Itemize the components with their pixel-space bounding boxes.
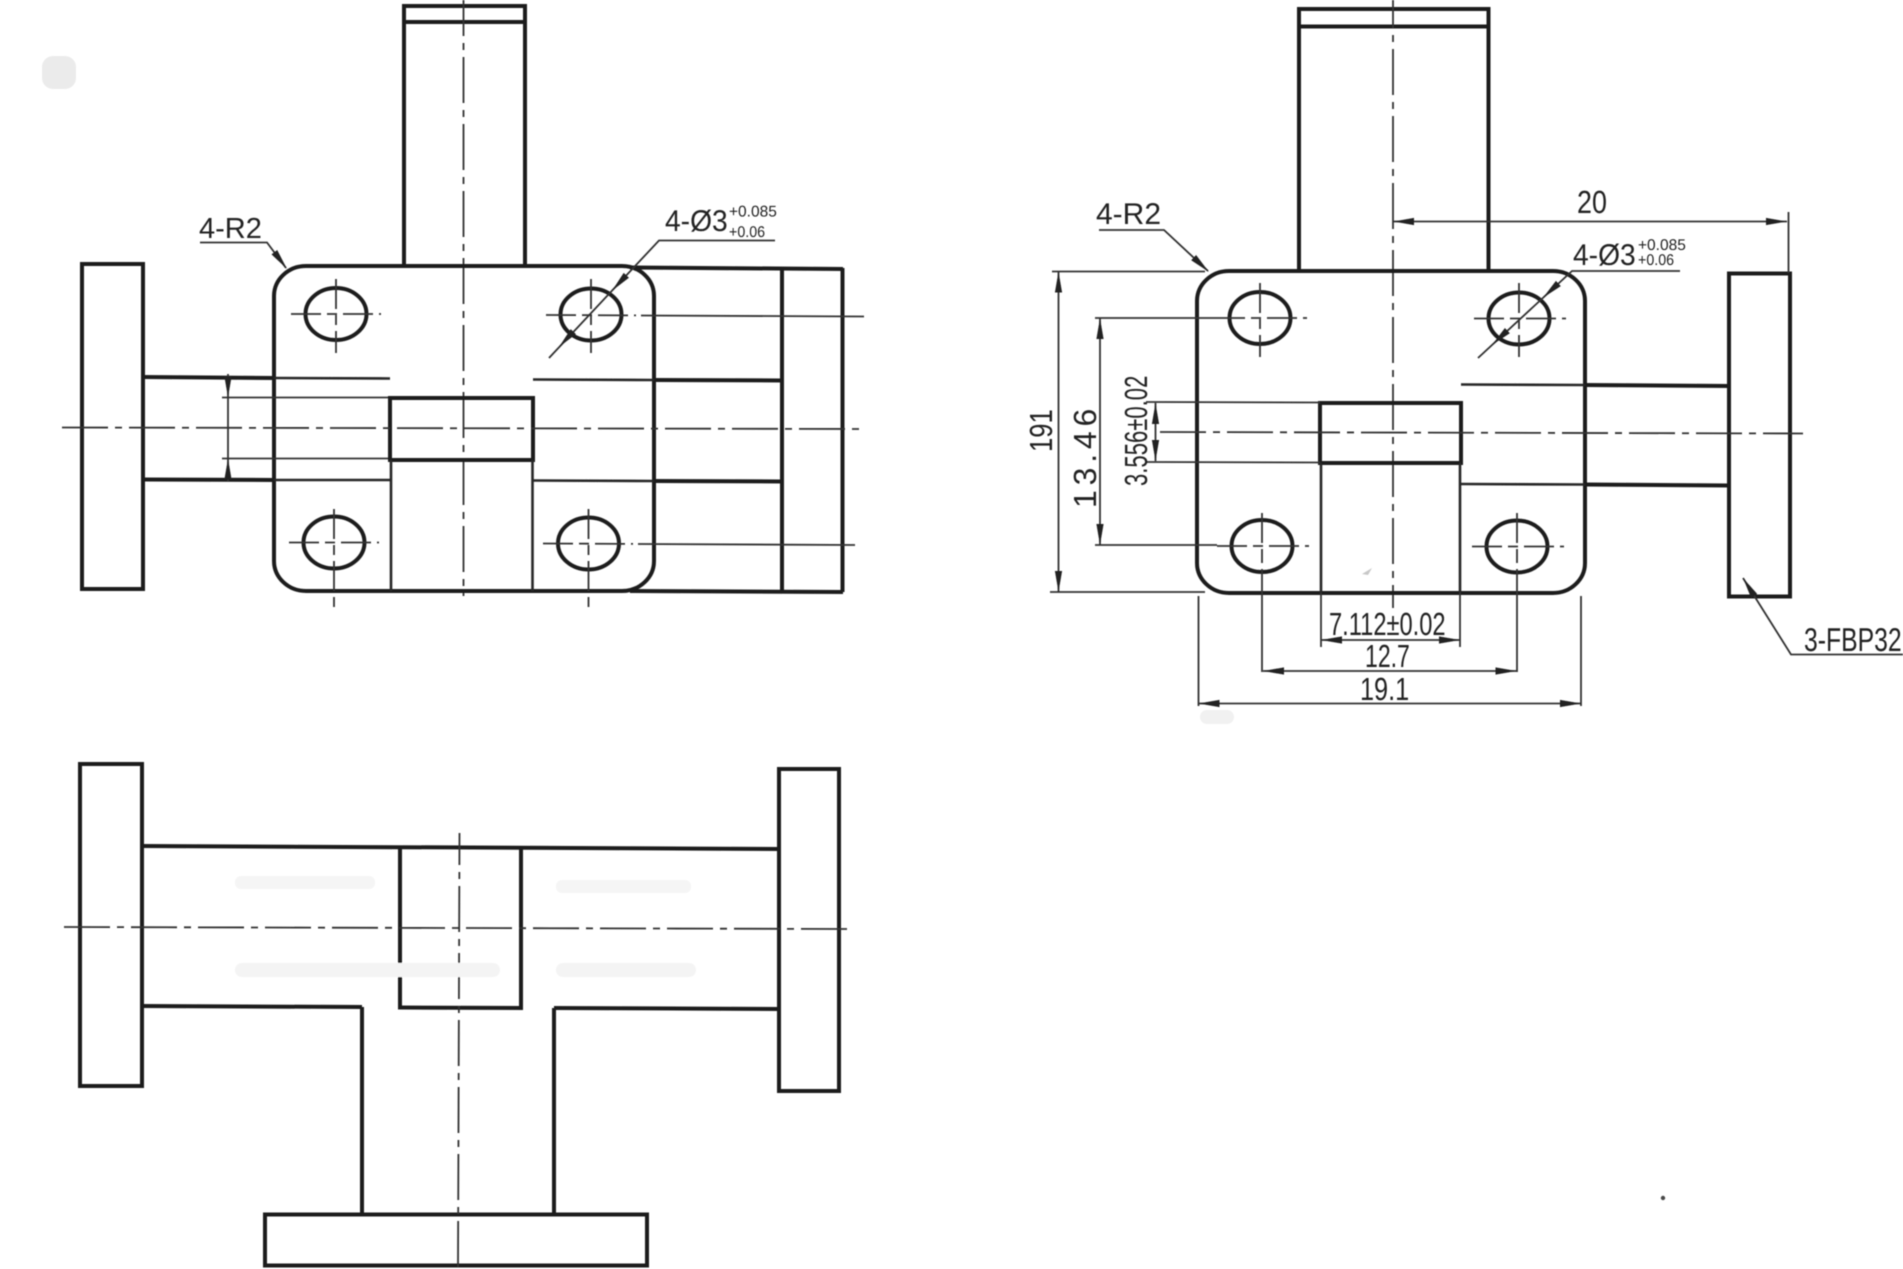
svg-text:+0.06: +0.06 [729,224,765,241]
svg-text:4-R2: 4-R2 [199,213,262,245]
svg-text:191: 191 [1023,409,1059,452]
svg-text:4-R2: 4-R2 [1096,198,1161,231]
svg-text:19.1: 19.1 [1360,671,1409,707]
svg-text:13.46: 13.46 [1067,404,1103,508]
svg-text:4-Ø3: 4-Ø3 [1573,239,1636,272]
svg-text:20: 20 [1577,184,1607,220]
svg-text:12.7: 12.7 [1365,638,1410,674]
svg-text:+0.06: +0.06 [1638,252,1674,269]
svg-text:7.112±0.02: 7.112±0.02 [1329,606,1446,642]
svg-text:+0.085: +0.085 [729,204,777,221]
svg-text:4-Ø3: 4-Ø3 [665,205,728,238]
svg-text:3-FBP32: 3-FBP32 [1804,621,1902,658]
svg-text:3.556±0.02: 3.556±0.02 [1118,376,1154,486]
